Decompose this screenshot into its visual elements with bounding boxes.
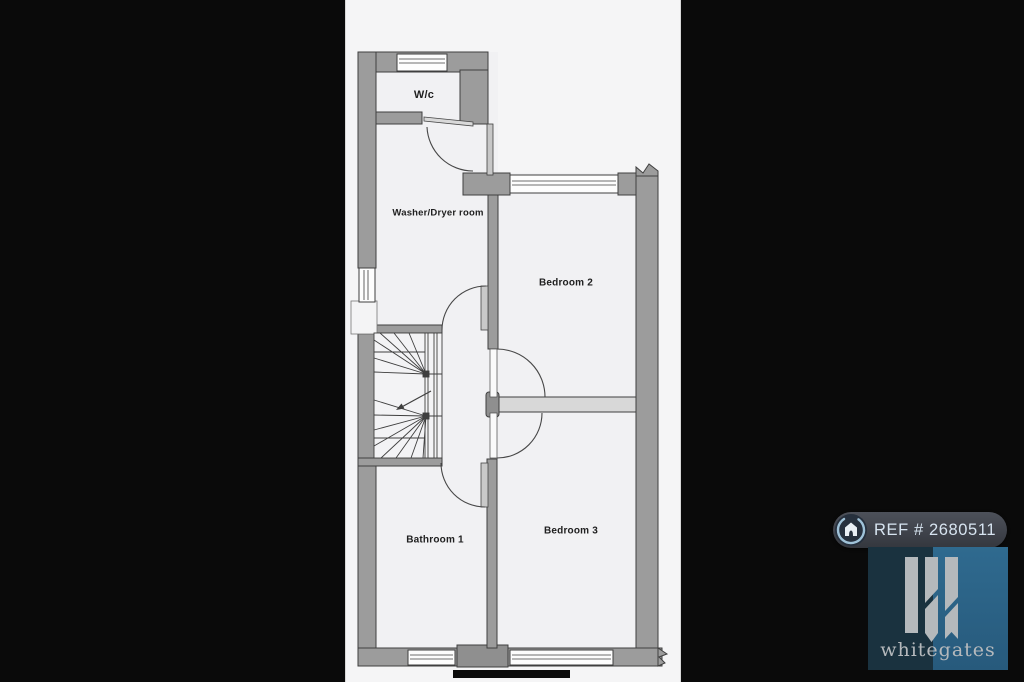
room-label-wc: W/c bbox=[414, 89, 434, 101]
room-label-bathroom-1: Bathroom 1 bbox=[406, 535, 464, 546]
staircase bbox=[374, 333, 442, 458]
scale-bar bbox=[453, 670, 570, 678]
room-label-bedroom-3: Bedroom 3 bbox=[544, 526, 598, 537]
house-icon bbox=[834, 513, 868, 547]
room-label-washer-dryer: Washer/Dryer room bbox=[392, 208, 483, 219]
room-label-bedroom-2: Bedroom 2 bbox=[539, 278, 593, 289]
floorplan-image: W/c Washer/Dryer room Bedroom 2 Bathroom… bbox=[0, 0, 1024, 682]
ref-badge: REF # 2680511 bbox=[833, 512, 1007, 548]
brand-logo: whitegates bbox=[868, 547, 1008, 670]
ref-number: REF # 2680511 bbox=[874, 521, 996, 540]
brand-name: whitegates bbox=[868, 639, 1008, 661]
